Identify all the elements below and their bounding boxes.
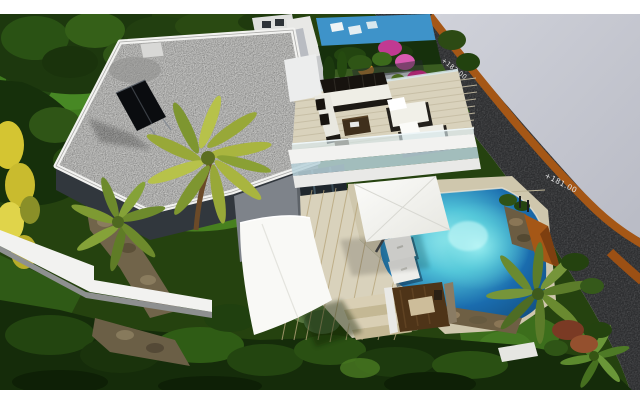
rooftop-box [140,42,164,58]
roof-terrace [284,51,481,188]
terrace-planter-wall [284,54,322,102]
villa-render-image: +182.00 +181.00 [0,0,640,412]
villa-render-screenshot: +182.00 +181.00 [0,0,640,412]
